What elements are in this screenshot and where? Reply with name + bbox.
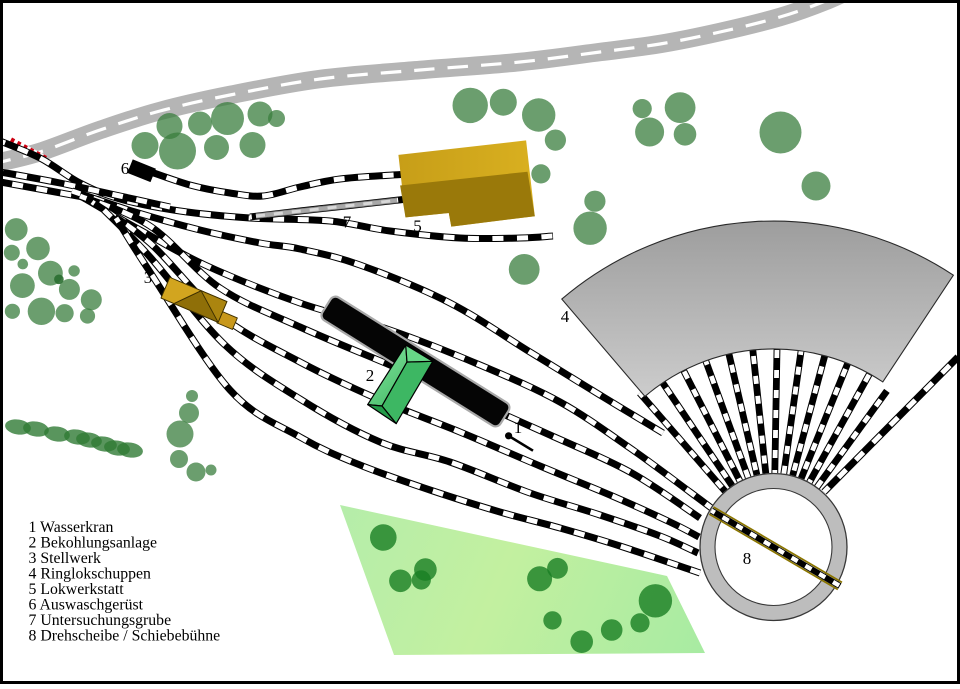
svg-text:1 Wasserkran: 1 Wasserkran bbox=[29, 519, 114, 536]
svg-text:2: 2 bbox=[366, 366, 375, 385]
svg-text:6: 6 bbox=[121, 159, 130, 178]
svg-text:8 Drehscheibe / Schiebebühne: 8 Drehscheibe / Schiebebühne bbox=[29, 627, 221, 644]
svg-text:4: 4 bbox=[561, 307, 570, 326]
svg-text:7 Untersuchungsgrube: 7 Untersuchungsgrube bbox=[29, 612, 172, 629]
svg-text:1: 1 bbox=[514, 418, 523, 437]
svg-text:7: 7 bbox=[343, 213, 352, 232]
svg-text:3: 3 bbox=[144, 268, 153, 287]
svg-text:5: 5 bbox=[413, 216, 422, 235]
svg-text:5 Lokwerkstatt: 5 Lokwerkstatt bbox=[29, 581, 125, 598]
svg-text:8: 8 bbox=[743, 549, 752, 568]
svg-text:3 Stellwerk: 3 Stellwerk bbox=[29, 550, 101, 567]
